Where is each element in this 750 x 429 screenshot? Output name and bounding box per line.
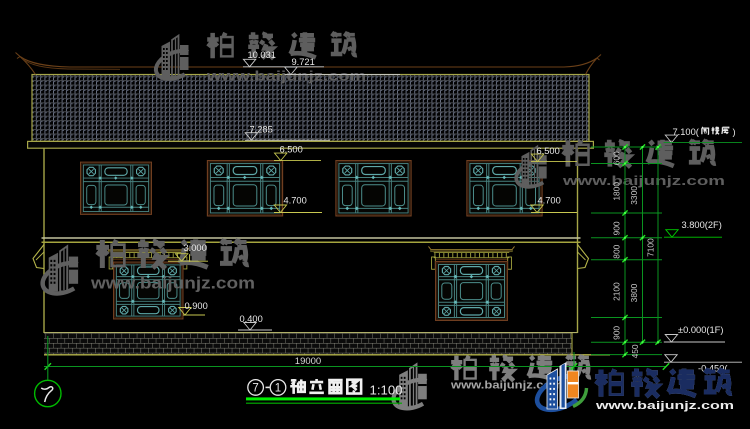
svg-text:7.285: 7.285 <box>250 124 273 134</box>
svg-text:600: 600 <box>612 151 622 165</box>
svg-text:4.700: 4.700 <box>538 195 561 205</box>
svg-text:10.031: 10.031 <box>248 50 276 60</box>
svg-text:9.721: 9.721 <box>292 57 315 67</box>
svg-text:19000: 19000 <box>295 356 321 367</box>
svg-text:www.baijunjz.com: www.baijunjz.com <box>206 68 366 83</box>
svg-text:450: 450 <box>630 344 640 358</box>
svg-text:3.000: 3.000 <box>184 243 207 253</box>
svg-text:1800: 1800 <box>612 182 622 201</box>
svg-text:6.500: 6.500 <box>537 146 560 156</box>
svg-text:1: 1 <box>275 382 281 394</box>
svg-text:6.500: 6.500 <box>280 145 303 155</box>
svg-text:www.baijunjz.com: www.baijunjz.com <box>90 275 255 293</box>
svg-text:www.baijunjz.com: www.baijunjz.com <box>595 400 735 412</box>
svg-text:±0.000(1F): ±0.000(1F) <box>678 325 723 335</box>
svg-text:2100: 2100 <box>612 282 622 301</box>
svg-text:7100: 7100 <box>646 238 656 257</box>
svg-text:0.400: 0.400 <box>240 314 263 324</box>
svg-text:3300: 3300 <box>629 186 639 205</box>
svg-text:7.100(: 7.100( <box>673 127 700 137</box>
svg-text:900: 900 <box>612 326 622 340</box>
svg-text:900: 900 <box>612 221 622 235</box>
svg-text:): ) <box>733 127 736 137</box>
svg-text:7: 7 <box>252 382 258 394</box>
svg-text:3800: 3800 <box>629 283 639 302</box>
svg-text:4.700: 4.700 <box>284 196 307 206</box>
svg-text:0.900: 0.900 <box>185 301 208 311</box>
svg-text:800: 800 <box>612 244 622 258</box>
svg-text:www.baijunjz.com: www.baijunjz.com <box>562 173 725 188</box>
svg-text:1:100: 1:100 <box>370 383 403 398</box>
svg-text:3.800(2F): 3.800(2F) <box>682 220 722 230</box>
